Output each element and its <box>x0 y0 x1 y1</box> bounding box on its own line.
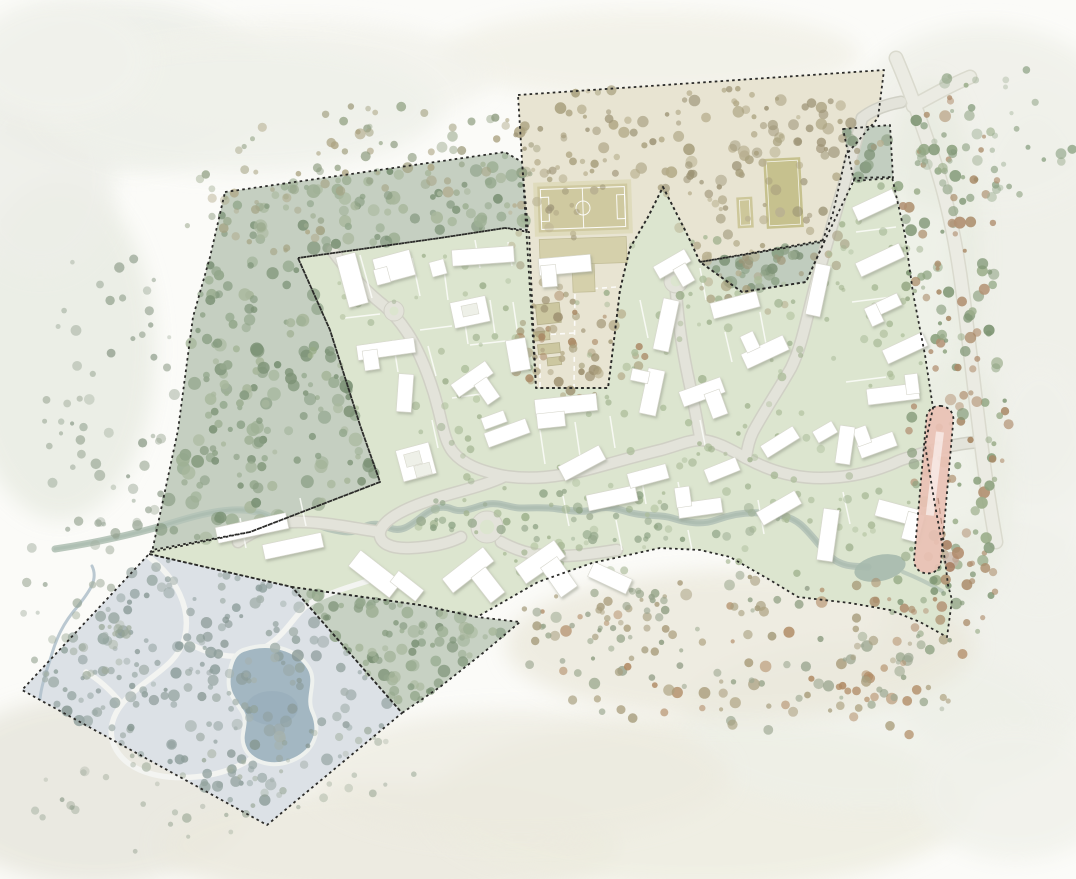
site-plan-map <box>0 0 1076 879</box>
small-pitch <box>736 197 754 229</box>
building <box>904 373 919 394</box>
building <box>362 349 380 371</box>
building <box>674 486 692 508</box>
building <box>541 264 558 287</box>
building <box>396 374 414 413</box>
building <box>536 411 565 429</box>
map-canvas <box>0 0 1076 879</box>
